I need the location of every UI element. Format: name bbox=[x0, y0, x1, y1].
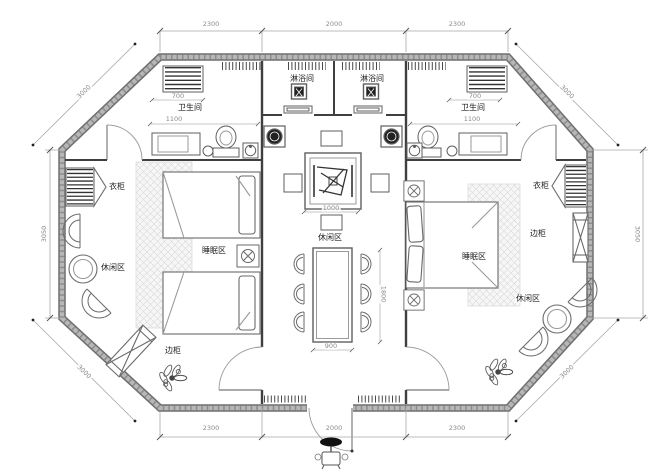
toilet-left bbox=[213, 126, 239, 157]
vanity-left bbox=[152, 133, 213, 156]
label-side-cabinet-left: 边柜 bbox=[164, 347, 182, 355]
dim-side-left: 3050 bbox=[41, 225, 48, 244]
shower-threshold-right bbox=[354, 106, 382, 113]
door-bedroom-right bbox=[406, 347, 449, 390]
dim-dining-table-width: 900 bbox=[324, 343, 338, 350]
nightstand-left bbox=[237, 245, 259, 267]
nightstand-right-top bbox=[404, 181, 424, 201]
dim-dining-table-length: 1800 bbox=[380, 285, 387, 304]
nightstand-right-bottom bbox=[404, 290, 424, 310]
label-leisure-center: 休闲区 bbox=[317, 234, 343, 242]
wardrobe-left-cabinet bbox=[66, 168, 106, 206]
lounge-chair-left-2 bbox=[75, 289, 111, 325]
label-sleeping-left: 睡眠区 bbox=[201, 247, 227, 255]
door-bedroom-left bbox=[219, 347, 262, 390]
floor-plan: 淋浴间 淋浴间 卫生间 卫生间 衣柜 衣柜 睡眠区 睡眠区 休闲区 休闲区 休闲… bbox=[0, 0, 651, 473]
label-wardrobe-right: 衣柜 bbox=[532, 182, 550, 190]
dim-closet-left-width: 700 bbox=[171, 93, 185, 100]
towel-closet-right bbox=[467, 66, 507, 92]
dim-bottom-center: 2000 bbox=[325, 425, 344, 432]
floor-drain-right bbox=[364, 84, 379, 99]
entrance-plant bbox=[315, 438, 348, 470]
washbasin-left bbox=[264, 126, 285, 147]
label-sleeping-right: 睡眠区 bbox=[461, 253, 487, 261]
floor-drain-left bbox=[292, 84, 307, 99]
vanity-right bbox=[447, 133, 507, 156]
label-shower-left: 淋浴间 bbox=[289, 75, 315, 83]
dim-top-left: 2300 bbox=[202, 21, 221, 28]
bathroom-right-fixtures bbox=[407, 66, 507, 158]
dim-closet-right-width: 700 bbox=[468, 93, 482, 100]
label-leisure-left: 休闲区 bbox=[100, 264, 126, 272]
lounge-chair-right-1 bbox=[568, 278, 604, 314]
dim-top-center: 2000 bbox=[325, 21, 344, 28]
door-bathroom-left bbox=[107, 125, 142, 160]
label-shower-right: 淋浴间 bbox=[359, 75, 385, 83]
dining-group bbox=[294, 248, 371, 342]
corner-basin-left bbox=[243, 143, 258, 158]
label-bathroom-right: 卫生间 bbox=[460, 104, 486, 112]
door-bathroom-right bbox=[521, 125, 556, 160]
washbasin-right bbox=[381, 126, 402, 147]
round-table-left bbox=[69, 255, 97, 283]
bed-left-1 bbox=[163, 172, 260, 238]
side-cabinet-right-box bbox=[573, 213, 588, 262]
dim-bottom-left: 2300 bbox=[202, 425, 221, 432]
plant-left bbox=[158, 364, 187, 392]
bed-left-2 bbox=[163, 272, 260, 334]
label-bathroom-left: 卫生间 bbox=[177, 104, 203, 112]
label-wardrobe-left: 衣柜 bbox=[108, 183, 126, 191]
dim-tea-table-width: 1000 bbox=[322, 205, 341, 212]
dim-bottom-right: 2300 bbox=[448, 425, 467, 432]
dim-top-right: 2300 bbox=[448, 21, 467, 28]
round-table-right bbox=[543, 305, 571, 333]
entrance-opening bbox=[307, 400, 353, 415]
plant-right bbox=[484, 358, 513, 386]
corner-basin-right bbox=[407, 143, 422, 158]
bed-right-double bbox=[406, 202, 498, 288]
wardrobe-right-cabinet bbox=[552, 165, 587, 207]
bathroom-left-fixtures bbox=[152, 66, 258, 158]
towel-closet-left bbox=[163, 66, 203, 92]
dim-side-right: 3050 bbox=[634, 225, 641, 244]
dim-bath-right-width: 1100 bbox=[463, 116, 482, 123]
side-cabinet-left-box bbox=[106, 325, 156, 377]
label-leisure-right: 休闲区 bbox=[515, 295, 541, 303]
shower-threshold-left bbox=[284, 106, 312, 113]
label-side-cabinet-right: 边柜 bbox=[529, 230, 547, 238]
dim-bath-left-width: 1100 bbox=[165, 116, 184, 123]
tea-table-group bbox=[284, 131, 389, 230]
